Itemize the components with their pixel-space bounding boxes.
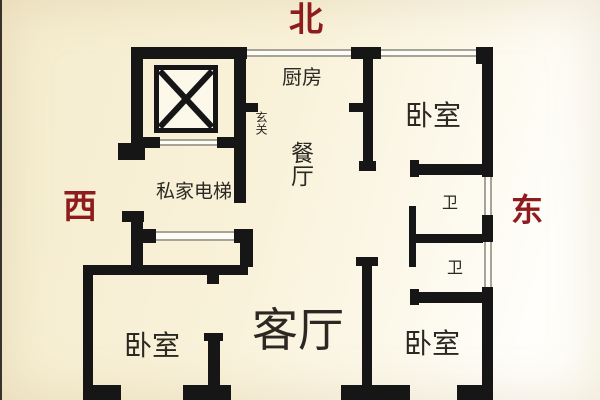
private-elevator-label: 私家电梯 — [156, 183, 232, 202]
wall-shaft-bottom-right — [217, 137, 246, 148]
kitchen-north-window — [247, 49, 351, 57]
east-window-upper — [484, 177, 492, 215]
entry-label: 玄关 — [255, 111, 267, 135]
elevator-cross-icon — [159, 70, 213, 128]
wall-bedroom-se-north — [410, 292, 493, 303]
bedroom-southeast-label: 卧室 — [404, 331, 460, 359]
wall-shaft-left — [131, 47, 143, 143]
wall-east-upper — [482, 47, 493, 177]
bedroom-northeast-label: 卧室 — [405, 103, 461, 131]
wall-shaft-top — [131, 47, 247, 59]
bathroom-upper-label: 卫 — [442, 196, 458, 212]
wall-lobby-west-flange — [122, 211, 144, 222]
floor-plan: 北 西 东 厨房 玄关 餐厅 私家电梯 卧室 卫 卫 客厅 卧室 卧室 — [0, 0, 600, 400]
wall-south-far-right — [457, 385, 493, 400]
wall-bathroom-divider — [415, 234, 483, 243]
wall-kitchen-divider — [363, 47, 373, 164]
wall-shaft-right — [234, 47, 246, 203]
bathroom-lower-label: 卫 — [447, 261, 463, 277]
left-image-edge — [0, 0, 2, 400]
bedroom-southwest-label: 卧室 — [124, 333, 180, 361]
wall-shaft-bottom-left — [131, 137, 160, 148]
wall-living-bedroom-divider-cap — [356, 257, 378, 266]
wall-bedroom-se-north-cap — [410, 289, 419, 305]
wall-south-mid-right — [341, 385, 410, 400]
kitchen-label: 厨房 — [282, 68, 322, 88]
wall-bedroom-ne-south-cap — [410, 160, 419, 177]
wall-lobby-east-lower — [240, 229, 253, 267]
lobby-south-window — [156, 231, 234, 241]
compass-west-label: 西 — [63, 191, 97, 225]
dining-label: 餐厅 — [289, 141, 312, 187]
living-room-label: 客厅 — [252, 308, 344, 354]
wall-bedroom-sw-east — [208, 333, 220, 400]
east-window-lower — [484, 242, 492, 287]
wall-living-bedroom-divider — [362, 257, 372, 400]
wall-bedroom-sw-east-cap — [204, 333, 223, 341]
wall-south-mid-left — [183, 385, 231, 400]
bedroom-ne-north-window — [381, 49, 476, 57]
wall-lobby-south-left — [135, 229, 156, 243]
wall-kitchen-divider-cap — [359, 161, 376, 171]
wall-west-lower — [83, 265, 93, 400]
elevator-shaft-icon — [154, 65, 218, 133]
wall-bedroom-ne-south — [410, 164, 493, 175]
compass-north-label: 北 — [289, 4, 323, 38]
wall-bedroom-sw-door-jamb — [207, 275, 219, 284]
wall-kitchen-door-jamb — [349, 103, 363, 112]
wall-bedroom-sw-north — [83, 265, 248, 275]
compass-east-label: 东 — [511, 194, 543, 226]
wall-east-middle-block — [482, 215, 493, 242]
elevator-door — [160, 139, 217, 146]
wall-east-lower — [482, 287, 493, 400]
